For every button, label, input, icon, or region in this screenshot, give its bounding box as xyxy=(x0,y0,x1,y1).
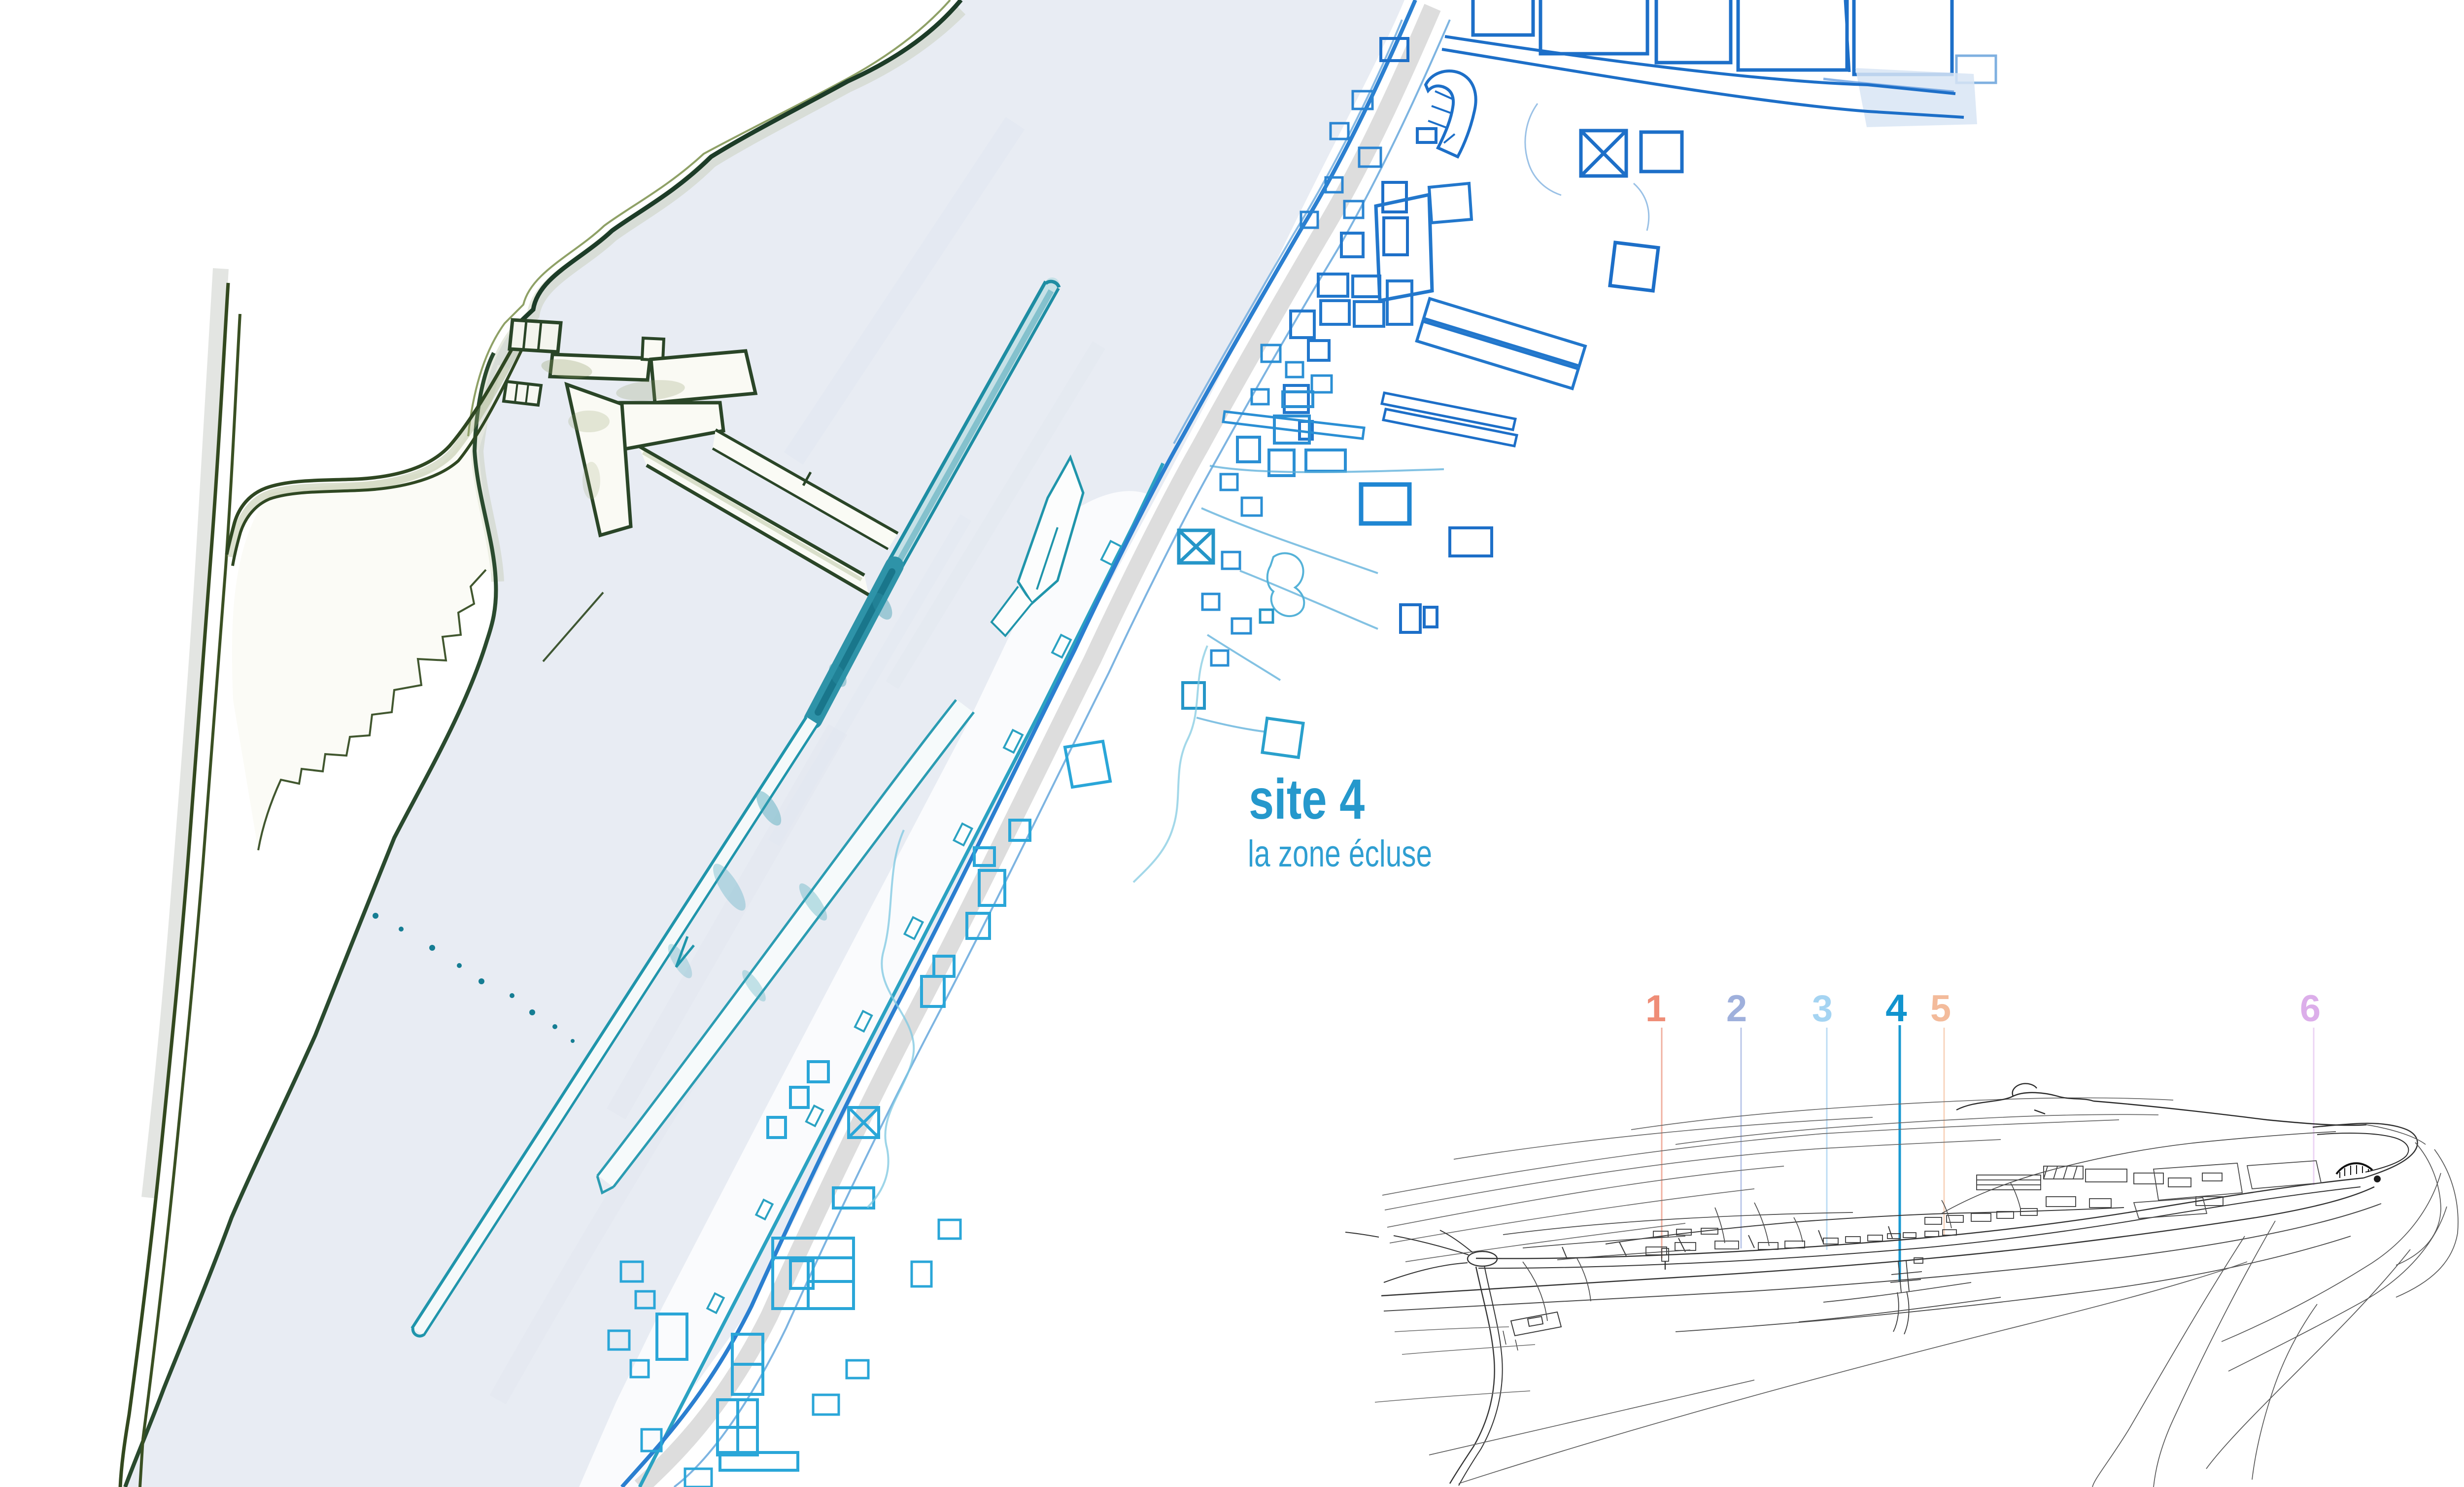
svg-text:4: 4 xyxy=(1885,986,1907,1030)
svg-text:la zone écluse: la zone écluse xyxy=(1248,833,1432,875)
svg-text:5: 5 xyxy=(1930,988,1951,1030)
svg-text:6: 6 xyxy=(2300,988,2321,1030)
svg-text:site 4: site 4 xyxy=(1249,768,1365,831)
svg-text:1: 1 xyxy=(1645,988,1666,1030)
svg-text:2: 2 xyxy=(1726,988,1747,1030)
svg-text:3: 3 xyxy=(1812,988,1833,1030)
